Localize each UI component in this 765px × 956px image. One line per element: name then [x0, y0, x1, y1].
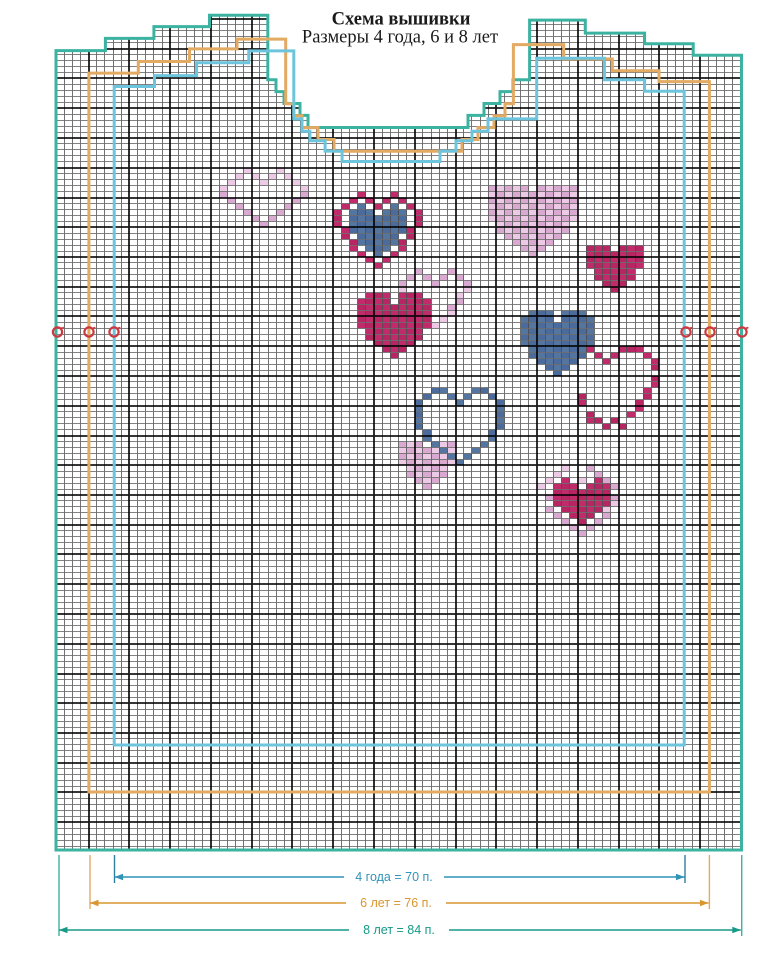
svg-text:Размеры 4 года, 6 и 8 лет: Размеры 4 года, 6 и 8 лет: [302, 28, 498, 48]
svg-text:4 года = 70 п.: 4 года = 70 п.: [355, 870, 433, 884]
svg-text:Схема вышивки: Схема вышивки: [332, 10, 471, 30]
svg-text:6 лет = 76 п.: 6 лет = 76 п.: [360, 896, 432, 910]
svg-text:8 лет = 84 п.: 8 лет = 84 п.: [363, 923, 435, 937]
